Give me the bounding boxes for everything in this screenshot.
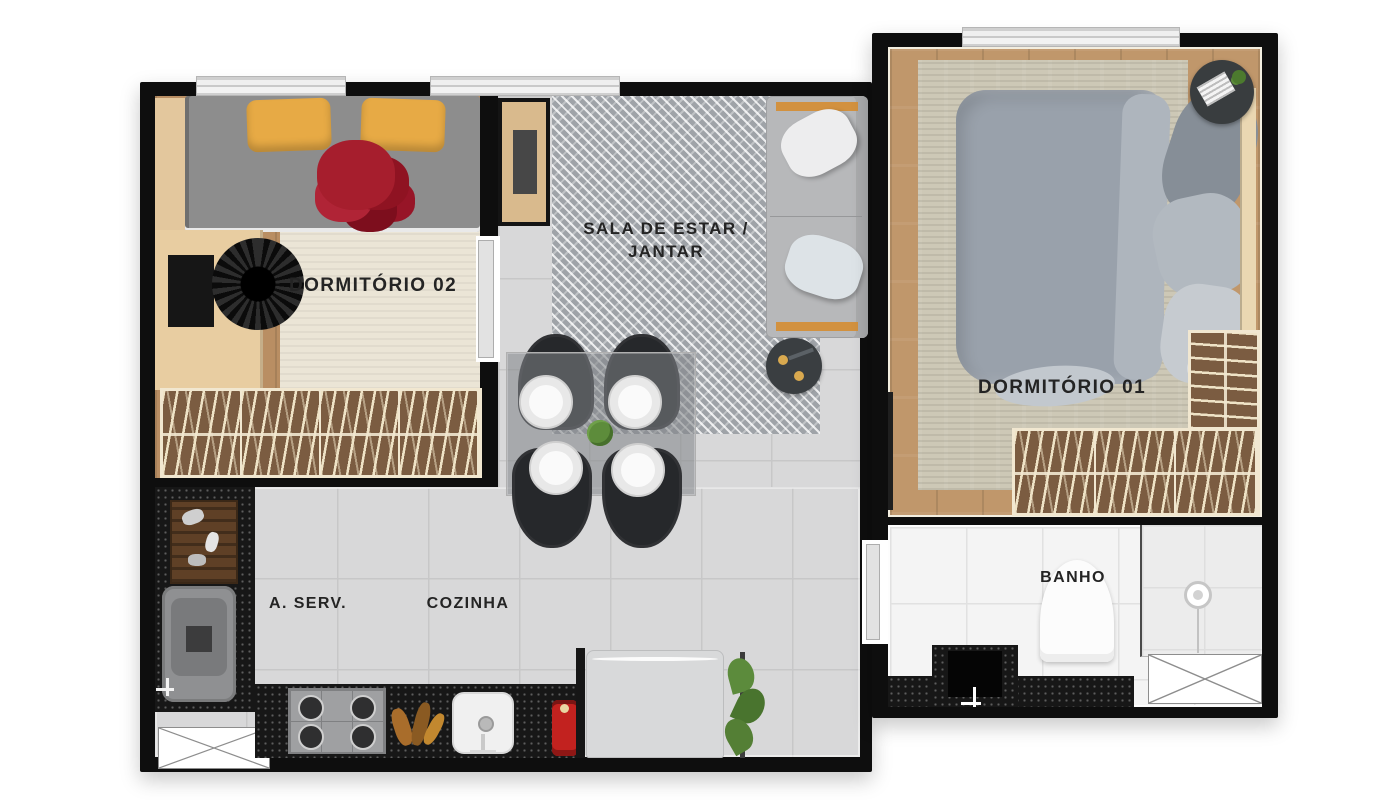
bedroom1-wardrobe-bottom: [1012, 428, 1260, 516]
coffee-table-tray: [788, 348, 814, 361]
plate: [608, 375, 662, 429]
room-label-dormitorio-02: DORMITÓRIO 02: [289, 275, 457, 297]
wardrobe-rail: [1224, 333, 1227, 427]
sofa-trim-top: [776, 102, 858, 111]
coffee-table-plate: [794, 371, 804, 381]
plate: [529, 441, 583, 495]
floor-plan: DORMITÓRIO 02 SALA DE ESTAR / JANTAR DOR…: [0, 0, 1400, 800]
coffee-machine: [552, 700, 578, 756]
bathroom-shaft: [1148, 654, 1262, 704]
shower-pipe: [1197, 609, 1199, 653]
nightstand-book: [1197, 71, 1236, 106]
bathroom-sink-counter: [932, 645, 1018, 707]
plate: [519, 375, 573, 429]
window: [962, 27, 1180, 47]
table-plant: [587, 420, 613, 446]
stove: [288, 688, 386, 754]
kitchen-sink: [452, 692, 514, 754]
burner: [298, 724, 324, 750]
crate-items: [180, 507, 205, 528]
room-label-cozinha: COZINHA: [427, 595, 510, 613]
washing-machine-panel: [186, 626, 212, 652]
kitchen-divider-wall: [576, 648, 585, 758]
sink-drain: [478, 716, 494, 732]
burner: [350, 695, 376, 721]
kitchen-plant: [722, 652, 764, 758]
crate-items: [188, 554, 206, 566]
burner: [298, 695, 324, 721]
sofa: [766, 96, 868, 338]
bedroom1-door: [888, 392, 893, 510]
faucet-icon: [156, 688, 174, 691]
shower-head: [1184, 581, 1212, 609]
room-label-banho: BANHO: [1040, 569, 1106, 587]
bedroom2-wardrobe: [160, 388, 482, 478]
burner: [350, 724, 376, 750]
bedroom1-wardrobe-side: [1188, 330, 1260, 430]
shower-head-center: [1193, 590, 1203, 600]
crate-items: [204, 531, 221, 553]
nightstand: [1190, 60, 1254, 124]
window: [430, 76, 620, 96]
bathroom-faucet: [961, 702, 981, 705]
sofa-pillow-blue: [779, 228, 869, 307]
room-label-sala: SALA DE ESTAR / JANTAR: [583, 217, 749, 263]
coffee-table: [766, 338, 822, 394]
fridge: [586, 650, 724, 758]
coffee-table-plate: [778, 355, 788, 365]
washing-machine: [162, 586, 236, 702]
shower-area: [1140, 525, 1262, 657]
window: [196, 76, 346, 96]
bathroom-door: [866, 544, 880, 640]
bedroom2-bed: [185, 96, 480, 232]
wardrobe-rail: [163, 433, 479, 436]
bedroom2-door: [478, 240, 494, 358]
room-label-dormitorio-01: DORMITÓRIO 01: [978, 377, 1146, 399]
nightstand-plant: [1232, 70, 1246, 84]
sofa-seam: [770, 216, 862, 217]
bed2-red-blanket: [317, 140, 395, 210]
coffee-machine-cup: [560, 704, 569, 713]
room-label-area-servico: A. SERV.: [269, 595, 347, 613]
fridge-top-edge: [592, 657, 718, 661]
bed2-pillow-left: [246, 98, 332, 153]
wardrobe-rail: [1015, 472, 1257, 475]
room-label-sala-line1: SALA DE ESTAR /: [583, 217, 749, 240]
faucet-icon: [166, 678, 169, 696]
tv-screen: [513, 130, 537, 194]
kitchen-utensils: [392, 700, 444, 755]
bedroom2-monitor: [168, 255, 214, 327]
tv-cabinet: [498, 98, 550, 226]
sofa-pillow-white: [773, 100, 866, 186]
service-shaft: [158, 727, 270, 769]
room-label-sala-line2: JANTAR: [583, 240, 749, 263]
plate: [611, 443, 665, 497]
service-crate: [170, 500, 238, 584]
sofa-trim-bottom: [776, 322, 858, 331]
sink-faucet: [470, 750, 496, 754]
